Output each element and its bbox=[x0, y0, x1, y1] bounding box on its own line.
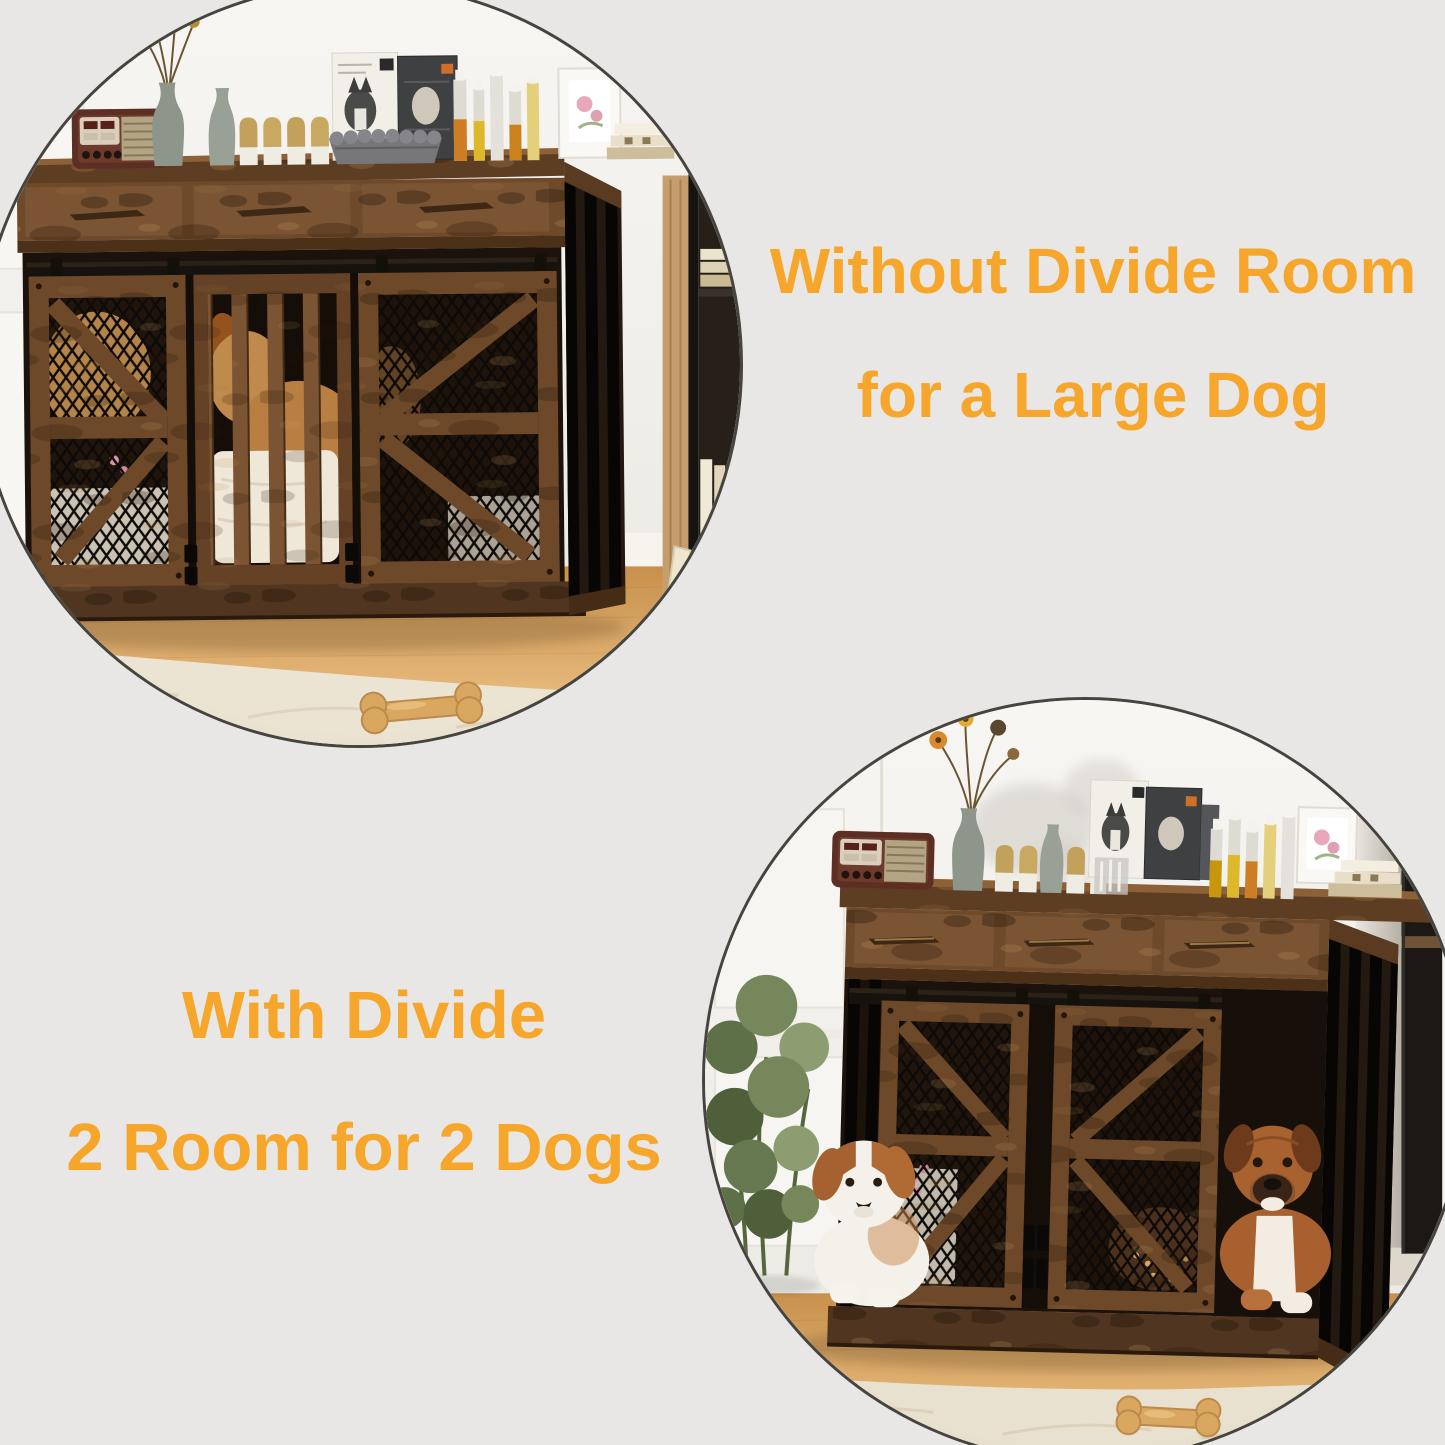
yellow-ball bbox=[0, 641, 18, 663]
caption-line-1: Without Divide Room bbox=[748, 239, 1438, 303]
vignette bbox=[705, 700, 1445, 1445]
caption-without-divider: Without Divide Room for a Large Dog bbox=[748, 239, 1438, 427]
caption-line-2: for a Large Dog bbox=[748, 363, 1438, 427]
caption-with-divider: With Divide 2 Room for 2 Dogs bbox=[14, 982, 714, 1181]
photo-without-divider bbox=[0, 0, 743, 748]
caption-line-2: 2 Room for 2 Dogs bbox=[14, 1114, 714, 1181]
dog-crate-single-room-illustration bbox=[0, 0, 740, 745]
flower-heads bbox=[118, 0, 200, 29]
dog-crate-two-room-illustration bbox=[705, 700, 1445, 1445]
vignette bbox=[0, 0, 740, 745]
photo-with-divider bbox=[702, 697, 1445, 1445]
caption-line-1: With Divide bbox=[14, 982, 714, 1049]
product-infographic: Without Divide Room for a Large Dog With… bbox=[0, 0, 1445, 1445]
